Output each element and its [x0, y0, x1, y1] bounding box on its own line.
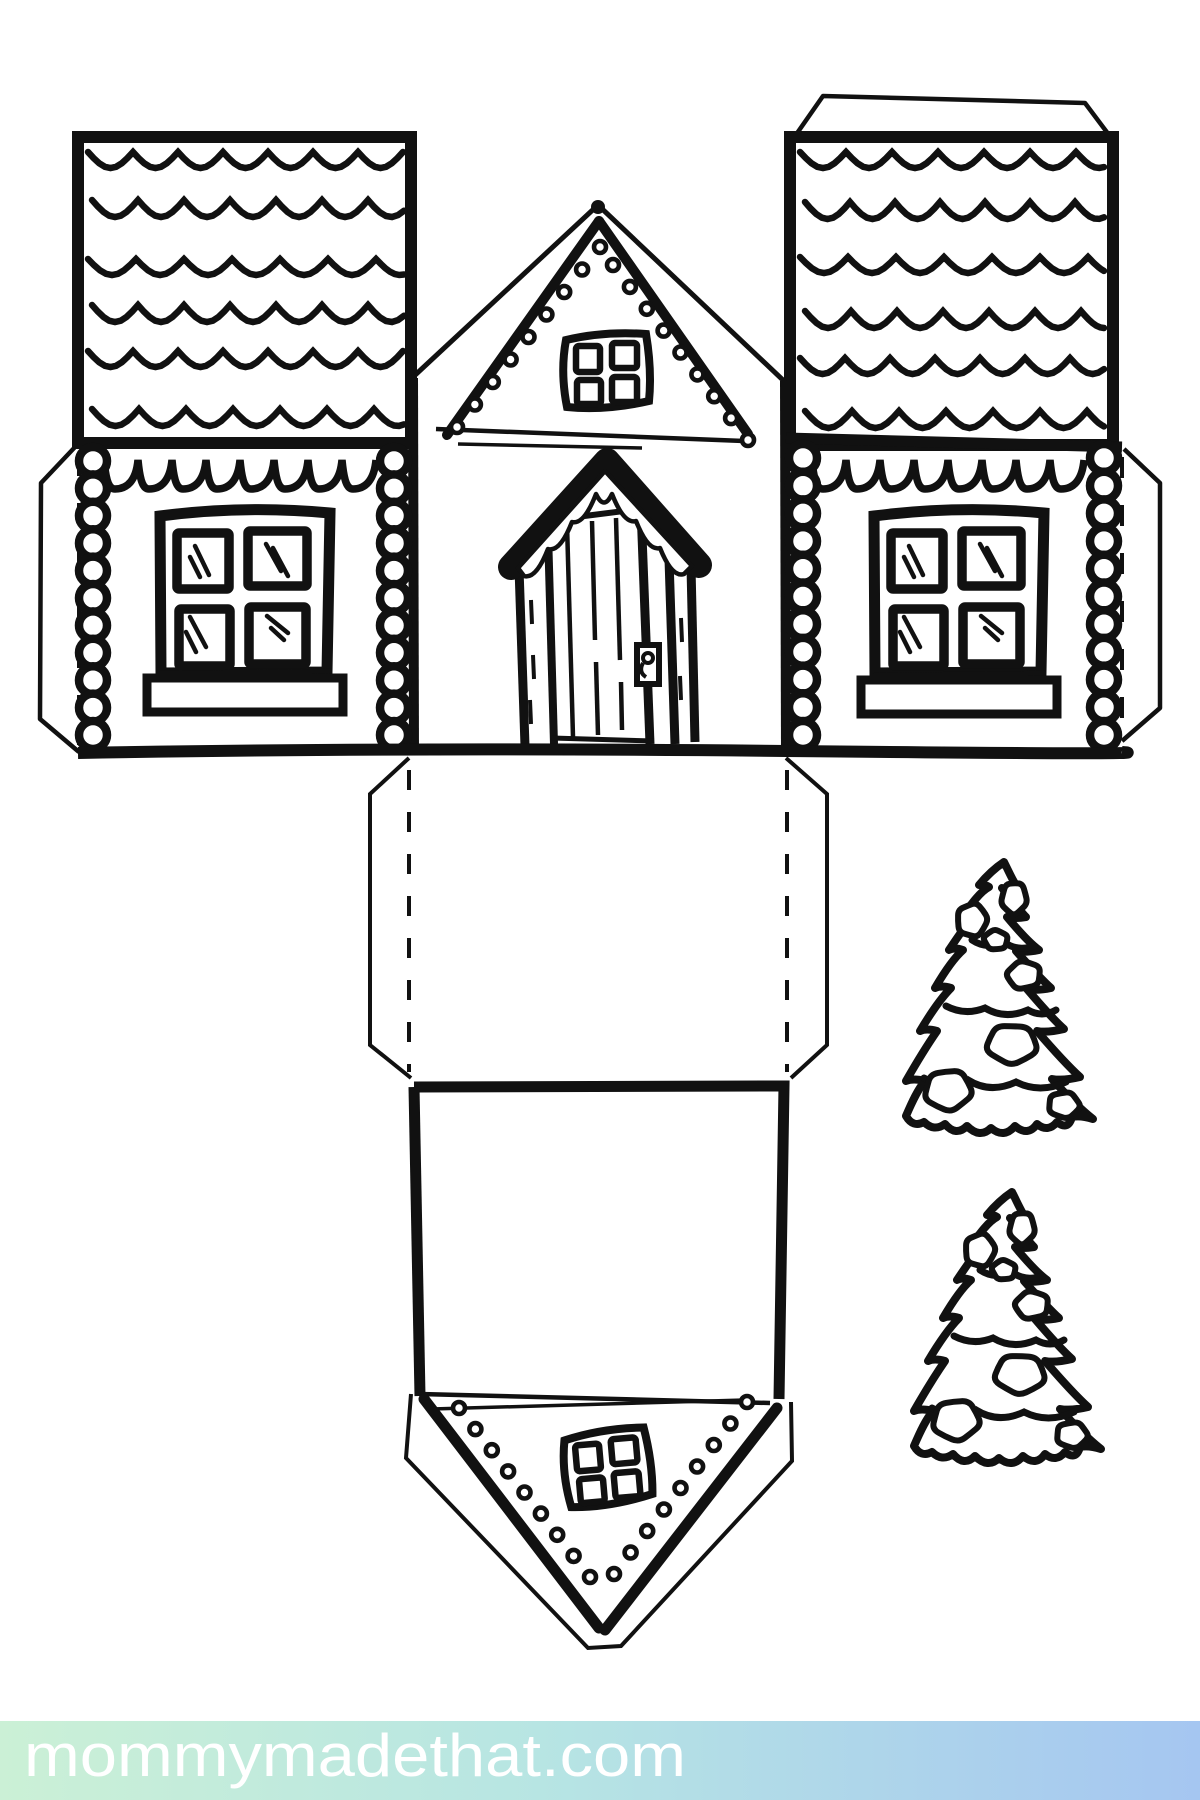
svg-text:mommymadethat.com: mommymadethat.com	[24, 1722, 686, 1789]
